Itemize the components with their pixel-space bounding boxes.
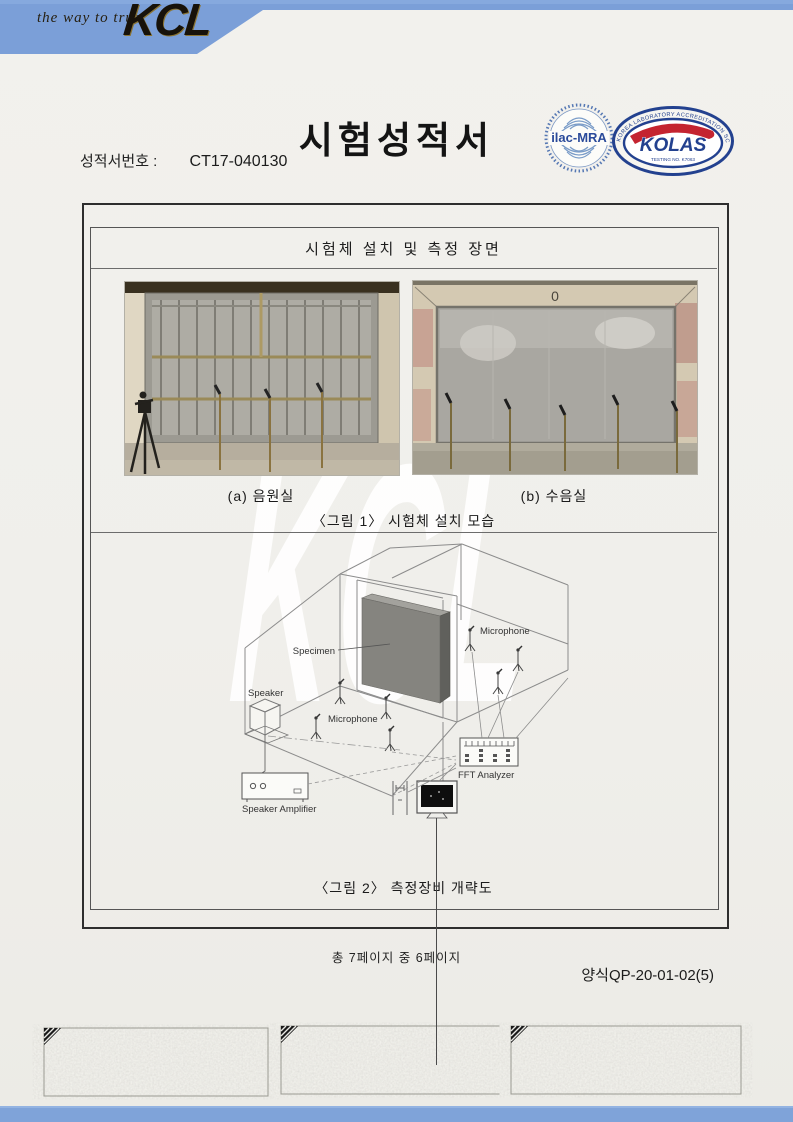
brand-logo: KCL bbox=[121, 0, 213, 46]
label-microphone-receiving: Microphone bbox=[480, 626, 530, 637]
kolas-logo: KOREA LABORATORY ACCREDITATION SCHEME KO… bbox=[610, 104, 736, 178]
section-divider-line bbox=[91, 532, 717, 533]
speaker-box bbox=[245, 699, 288, 743]
caption-figure-1: 〈그림 1〉 시험체 설치 모습 bbox=[82, 511, 725, 531]
label-speaker: Speaker bbox=[248, 688, 283, 699]
report-number-value: CT17-040130 bbox=[190, 153, 288, 171]
computer-monitor bbox=[393, 781, 457, 818]
caption-figure-2: 〈그림 2〉 측정장비 개략도 bbox=[82, 878, 725, 898]
report-number-label: 성적서번호 : bbox=[80, 150, 157, 171]
speaker-amplifier bbox=[242, 773, 308, 802]
grain-strip-1 bbox=[44, 1028, 268, 1096]
figure-box-title: 시험체 설치 및 측정 장면 bbox=[82, 238, 725, 259]
ilac-mra-text: ilac-MRA bbox=[551, 130, 607, 145]
header-band-highlight bbox=[0, 0, 793, 4]
label-speaker-amplifier: Speaker Amplifier bbox=[242, 804, 316, 815]
label-specimen: Specimen bbox=[293, 646, 335, 657]
measurement-diagram: Specimen Microphone Microphone Speaker bbox=[90, 538, 717, 876]
wall-mark-zero: 0 bbox=[551, 288, 559, 304]
kolas-name-text: KOLAS bbox=[640, 135, 707, 156]
form-number-text: 양식QP-20-01-02(5) bbox=[581, 964, 714, 985]
header-band bbox=[0, 0, 793, 58]
ilac-mra-logo: ilac-MRA bbox=[544, 102, 614, 174]
grain-strip-3 bbox=[511, 1026, 741, 1094]
monitor-cable-line bbox=[436, 818, 437, 1065]
photo-source-room bbox=[124, 281, 400, 476]
label-microphone-source: Microphone bbox=[328, 714, 378, 725]
photo-receiving-room-image: 0 bbox=[413, 281, 697, 474]
specimen-panel bbox=[362, 594, 450, 703]
label-fft-analyzer: FFT Analyzer bbox=[458, 770, 514, 781]
caption-photo-b: (b) 수음실 bbox=[412, 486, 696, 506]
bottom-grain-strips bbox=[0, 1022, 793, 1106]
footer-band bbox=[0, 1106, 793, 1122]
report-number-row: 성적서번호 : CT17-040130 bbox=[80, 150, 287, 171]
title-divider-line bbox=[91, 268, 717, 269]
fft-analyzer bbox=[460, 738, 518, 766]
photo-receiving-room: 0 bbox=[412, 280, 698, 475]
photo-source-room-image bbox=[125, 282, 399, 475]
caption-photo-a: (a) 음원실 bbox=[124, 486, 398, 506]
grain-strip-2 bbox=[281, 1026, 503, 1094]
report-page: the way to trust KCL 시험성적서 성적서번호 : CT17-… bbox=[0, 0, 793, 1122]
header-band-shape bbox=[0, 0, 793, 54]
kolas-testing-no: TESTING NO. K7063 bbox=[651, 157, 695, 162]
